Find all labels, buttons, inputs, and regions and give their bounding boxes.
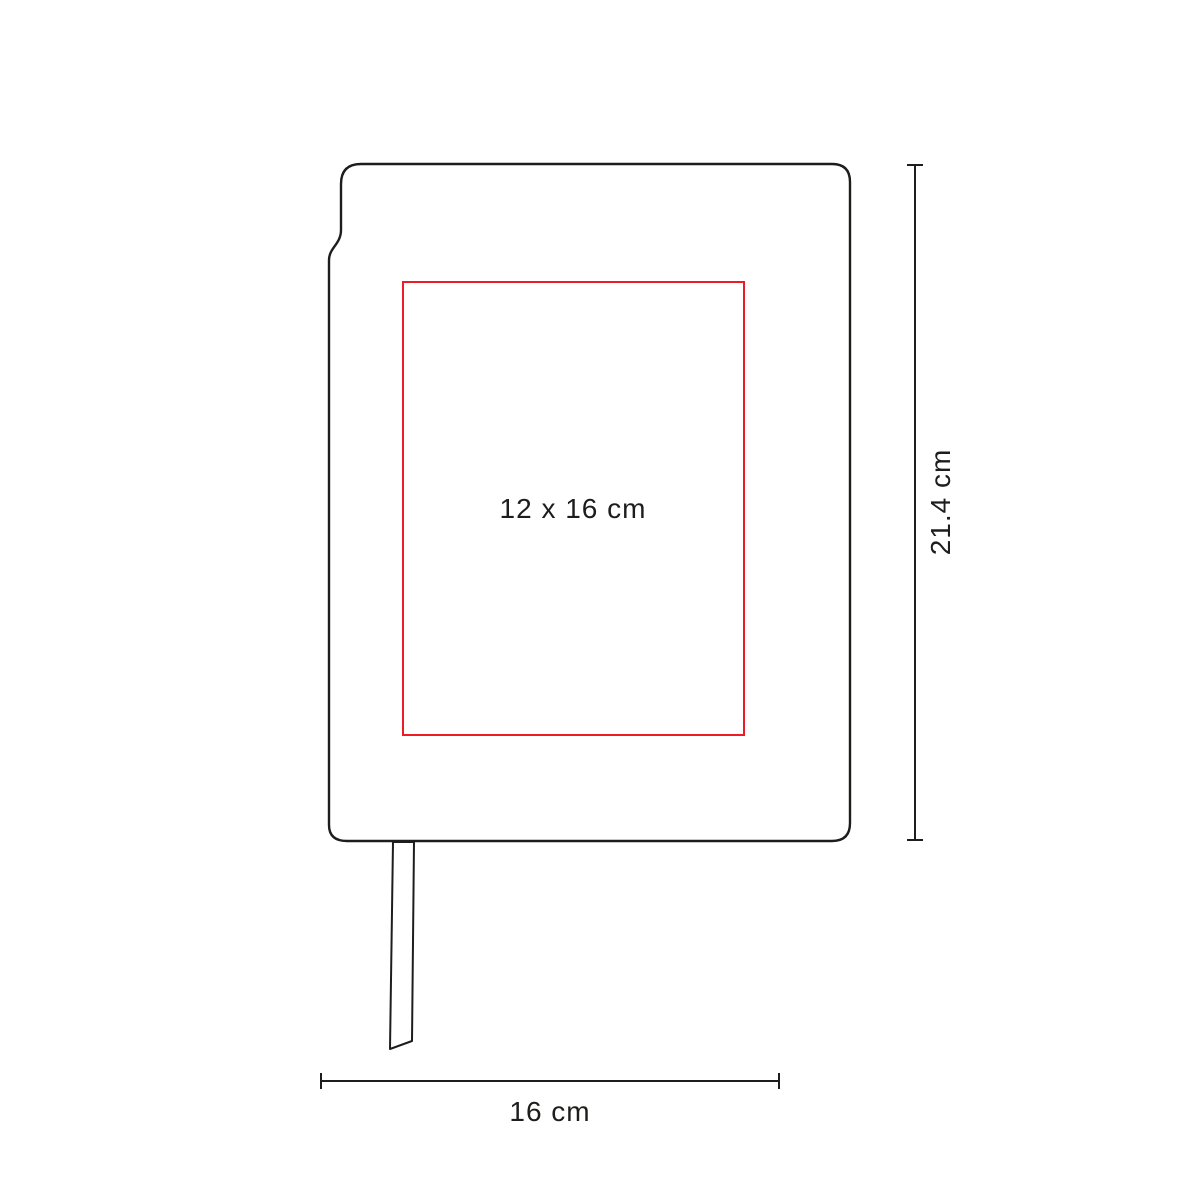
height-dimension-line	[907, 165, 923, 840]
outline-group	[321, 164, 923, 1089]
diagram-canvas	[0, 0, 1200, 1200]
height-dimension-label: 21.4 cm	[925, 449, 957, 556]
bookmark-ribbon-icon	[390, 842, 414, 1049]
print-area-label: 12 x 16 cm	[500, 493, 647, 525]
width-dimension-label: 16 cm	[509, 1096, 590, 1128]
width-dimension-line	[321, 1073, 779, 1089]
product-dimension-diagram: 12 x 16 cm 21.4 cm 16 cm	[0, 0, 1200, 1200]
